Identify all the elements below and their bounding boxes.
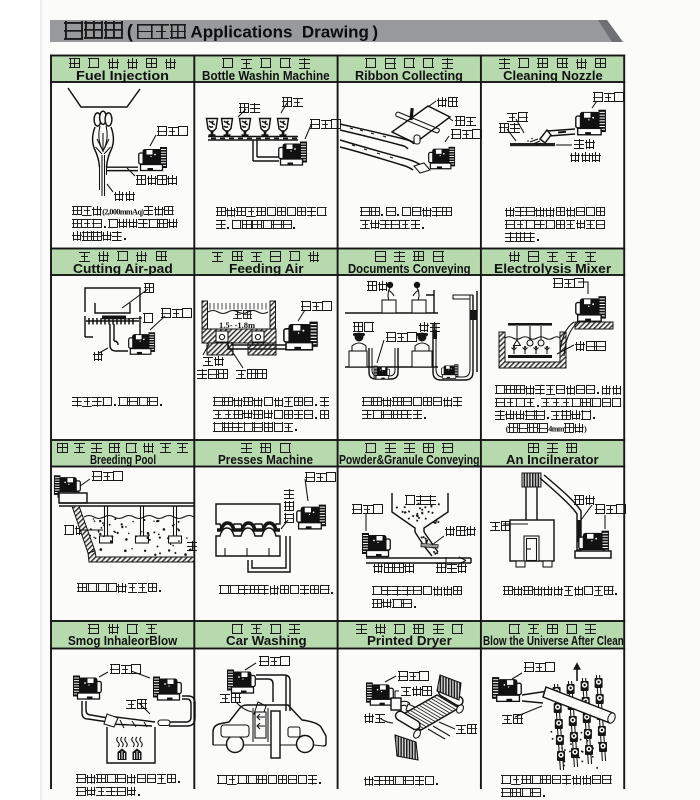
svg-text:1.5- -1.8m: 1.5- -1.8m — [219, 320, 255, 330]
